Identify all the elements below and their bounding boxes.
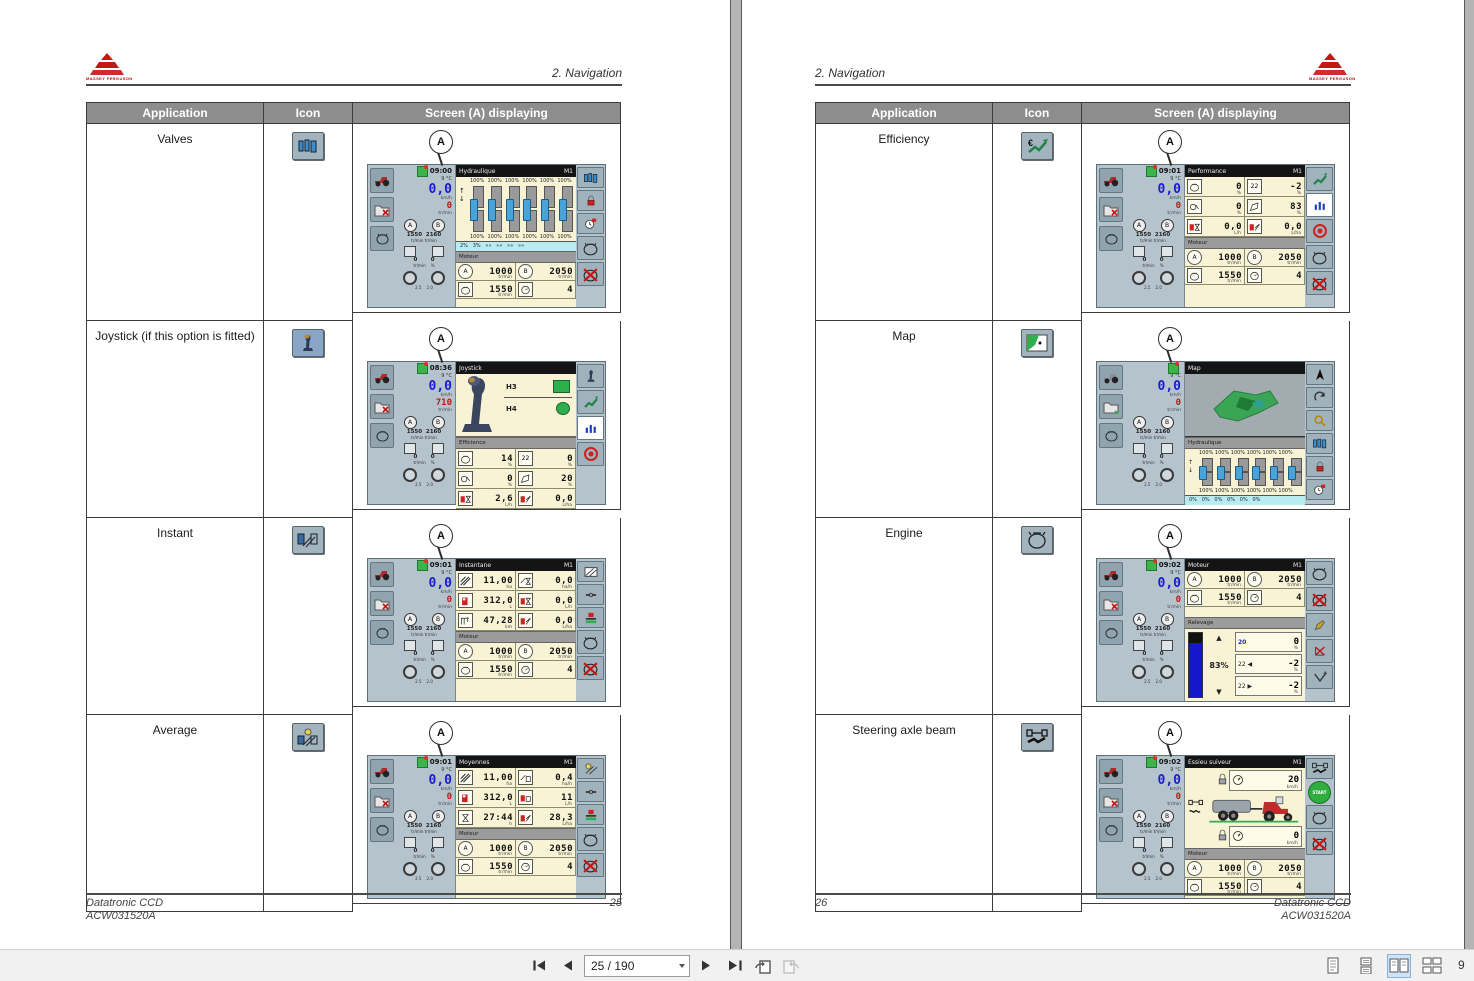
arrow-up-icon: ▲ — [1216, 634, 1221, 642]
memo-badge: M1 — [564, 759, 573, 766]
two-page-scroll-button[interactable] — [1420, 954, 1444, 978]
document-canvas: MASSEY FERGUSON 2. Navigation Applicatio… — [0, 0, 1474, 950]
footer-doc-ref: ACW031520A — [1151, 910, 1351, 923]
fuel-per-area-icon — [518, 613, 533, 628]
engine-off-icon — [1306, 831, 1333, 855]
wheel-icon — [403, 665, 417, 679]
page-gap — [730, 0, 742, 950]
engine-load-icon — [1187, 179, 1202, 194]
h3-label: H3 — [506, 383, 517, 391]
steering-axle-icon — [1306, 758, 1333, 779]
implement-mini-icon — [432, 640, 444, 651]
gear-mini-icon — [1133, 640, 1145, 651]
pto-b-icon: B — [1161, 613, 1174, 626]
motor-panel: A1000tr/min B2050tr/min 1550tr/min 4 — [456, 263, 576, 299]
pto-b-icon: B — [1247, 861, 1262, 876]
section-title: 2. Navigation — [552, 66, 622, 82]
page-dropdown-caret-icon[interactable] — [679, 964, 685, 968]
status-badge — [417, 560, 428, 571]
fuel-per-hour-icon — [518, 593, 533, 608]
panel-title: Map — [1188, 365, 1201, 372]
massey-ferguson-logo: MASSEY FERGUSON — [86, 52, 128, 82]
fuel-area-icon — [518, 491, 533, 506]
engine-small-icon — [1099, 423, 1123, 448]
efficiency-app-icon: € — [1021, 132, 1053, 160]
previous-view-button[interactable] — [752, 955, 774, 977]
h3-indicator-icon — [553, 380, 570, 393]
last-page-button[interactable] — [724, 955, 746, 977]
axle-icon — [1188, 797, 1203, 819]
pto-b-icon: B — [432, 810, 445, 823]
area-hatch-icon — [458, 770, 473, 785]
fuel-icon — [458, 790, 473, 805]
panel-title: Moteur — [1188, 562, 1209, 569]
footer-rule — [86, 893, 622, 895]
wheel-icon — [1132, 665, 1146, 679]
gear-mini-icon — [1133, 443, 1145, 454]
folder-x-icon — [1099, 788, 1123, 813]
h4-label: H4 — [506, 405, 517, 413]
h4-indicator-icon — [556, 402, 570, 415]
pto-a-icon: A — [1187, 250, 1202, 265]
engine-button-icon — [577, 827, 604, 851]
wheel-icon — [1132, 862, 1146, 876]
hourglass-icon — [458, 810, 473, 825]
field-shape — [1200, 385, 1290, 425]
gear-mini-icon — [1133, 837, 1145, 848]
motor-panel-title: Moteur — [1185, 237, 1305, 249]
bar-chart-icon — [1306, 193, 1333, 217]
engine-button-icon — [577, 630, 604, 654]
footer-doc-title: Datatronic CCD — [86, 897, 163, 910]
motor-panel: A1000tr/min B2050tr/min 1550tr/min 4 — [1185, 249, 1305, 285]
motor-panel: A1000tr/min B2050tr/min 1550tr/min 4 — [1185, 860, 1305, 896]
page-number-input[interactable] — [585, 957, 675, 975]
pto-a-icon: A — [404, 416, 417, 429]
page-left: MASSEY FERGUSON 2. Navigation Applicatio… — [0, 0, 729, 950]
motor-panel: A1000tr/min B2050tr/min 1550tr/min 4 — [456, 840, 576, 876]
implement-mini-icon — [1161, 640, 1173, 651]
fuel-average-icon — [518, 790, 533, 805]
page-number-right: 26 — [815, 897, 827, 909]
pto-a-icon: A — [1133, 810, 1146, 823]
memo-badge: M1 — [564, 562, 573, 569]
folder-x-icon — [370, 591, 394, 616]
app-label-map: Map — [816, 321, 993, 518]
wheel-icon — [1160, 468, 1174, 482]
page-gap — [1464, 0, 1474, 950]
callout-a: A — [429, 721, 453, 745]
app-label-steering: Steering axle beam — [816, 715, 993, 912]
motor-panel-title: Moteur — [456, 251, 576, 263]
clock-hatch-icon — [577, 758, 604, 779]
pto-a-icon: A — [404, 219, 417, 232]
folder-x-icon — [370, 197, 394, 222]
lock-icon — [1216, 827, 1229, 846]
clock-lock-icon — [1306, 479, 1333, 500]
engine-icon — [1187, 268, 1202, 283]
valve-column — [488, 185, 501, 233]
terminal-screen-engine: 09:02 9 °C 0,0 km/h 0 tr/min AB 1550 216… — [1096, 558, 1335, 702]
col-header-icon: Icon — [993, 103, 1082, 124]
folder-x-icon — [370, 394, 394, 419]
efficiency-grid: 14% 220% 0% 20% 2,6L/h 0,0L/ha — [456, 449, 576, 509]
folder-x-icon — [370, 788, 394, 813]
field-map-view — [1185, 374, 1305, 437]
gear22-icon: 22 — [1247, 179, 1262, 194]
wheel-icon — [431, 468, 445, 482]
tractor-icon — [370, 365, 394, 390]
slip-pencil-icon — [518, 471, 533, 486]
wheel-slip-icon — [1187, 199, 1202, 214]
pdf-viewer: MASSEY FERGUSON 2. Navigation Applicatio… — [0, 0, 1474, 981]
motor-panel-title: Moteur — [456, 631, 576, 643]
gear22-icon: 22 — [518, 451, 533, 466]
gauge-icon — [1247, 268, 1262, 283]
valve-column — [506, 185, 519, 233]
fuel-icon — [458, 593, 473, 608]
lift-plus-icon — [1306, 665, 1333, 689]
pto-a-icon: A — [1187, 861, 1202, 876]
pto-b-icon: B — [518, 644, 533, 659]
engine-button-icon — [577, 236, 604, 260]
footer-doc-title: Datatronic CCD — [1151, 897, 1351, 910]
terminal-screen-efficiency: 09:01 9 °C 0,0 km/h 0 tr/min AB 1550 216… — [1096, 164, 1335, 308]
sprayer-icon — [577, 804, 604, 825]
engine-app-icon — [1021, 526, 1053, 554]
instant-app-icon — [292, 526, 324, 554]
wheel-icon — [431, 665, 445, 679]
valves-icon — [577, 167, 604, 188]
valve-column — [470, 185, 483, 233]
pto-b-icon: B — [1161, 810, 1174, 823]
header-rule — [815, 84, 1351, 86]
average-app-icon — [292, 723, 324, 751]
hydraulics-panel-title: Hydraulique — [1185, 437, 1305, 449]
clock: 09:00 — [430, 167, 452, 175]
implement-mini-icon — [1161, 246, 1173, 257]
valve-column — [1252, 457, 1265, 487]
rpm-value: 0 — [396, 202, 452, 211]
wheel-icon — [431, 271, 445, 285]
app-label-valves: Valves — [87, 124, 264, 321]
status-badge — [1146, 757, 1157, 768]
panel-title: Moyennes — [459, 759, 490, 766]
gear-mini-icon — [404, 443, 416, 454]
pto-b-icon: B — [432, 613, 445, 626]
speedometer-icon — [1232, 827, 1244, 846]
massey-ferguson-logo: MASSEY FERGUSON — [1309, 52, 1351, 82]
valve-column — [541, 185, 554, 233]
slip-pencil-icon — [1247, 199, 1262, 214]
next-page-button[interactable] — [696, 955, 718, 977]
continuous-scroll-button[interactable] — [1354, 954, 1378, 978]
average-grid: 11,00ha 0,4ha/h 312,0L 11L/h 27:44h 28,3… — [456, 768, 576, 828]
valve-column — [1288, 457, 1301, 487]
engine-small-icon — [370, 423, 394, 448]
wheel-icon — [403, 862, 417, 876]
area-hatch-icon — [458, 573, 473, 588]
wheel-icon — [1160, 862, 1174, 876]
page-right-header: 2. Navigation MASSEY FERGUSON — [815, 52, 1351, 82]
app-label-joystick: Joystick (if this option is fitted) — [87, 321, 264, 518]
gear-mini-icon — [404, 837, 416, 848]
wheel-icon — [1160, 665, 1174, 679]
terminal-screen-map: 9 °C 0,0 km/h 0 tr/min AB 1550 2160 tr/m… — [1096, 361, 1335, 505]
gear-mini-icon — [404, 640, 416, 651]
terminal-screen-average: 09:01 9 °C 0,0 km/h 0 tr/min AB 1550 216… — [367, 755, 606, 899]
tractor-icon — [370, 168, 394, 193]
lock-red-icon — [577, 190, 604, 211]
valve-bars: ↑↓ — [456, 185, 576, 233]
pto-a-icon: A — [1133, 416, 1146, 429]
pto-b-icon: B — [432, 219, 445, 232]
memo-badge: M1 — [1293, 562, 1302, 569]
page-number-left: 25 — [600, 897, 622, 909]
terminal-screen-valves: 09:00 9 °C 0,0 km/h 0 tr/min AB 1550 216… — [367, 164, 606, 308]
lock-red-icon — [1306, 456, 1333, 477]
status-badge — [1146, 560, 1157, 571]
efficiency-panel-title: Efficience — [456, 437, 576, 449]
wheel-icon — [403, 271, 417, 285]
massey-ferguson-wordmark: MASSEY FERGUSON — [1309, 76, 1351, 81]
valve-timer-strip: 2% 3% »» »» »» »» — [456, 241, 576, 251]
gauge-icon — [518, 662, 533, 677]
engine-off-icon — [577, 853, 604, 877]
tractor-icon — [1099, 168, 1123, 193]
joystick-icon — [577, 364, 604, 388]
fuel-area-icon — [1247, 219, 1262, 234]
instant-grid: 11,00ha 0,0ha/h 312,0L 0,0L/h 47,28km 0,… — [456, 571, 576, 631]
next-view-button[interactable] — [780, 955, 802, 977]
engine-icon — [1187, 879, 1202, 894]
callout-a: A — [429, 524, 453, 548]
area-per-hour-icon — [518, 573, 533, 588]
linkage-panel-title: Relevage — [1185, 617, 1305, 629]
tractor-icon — [370, 562, 394, 587]
col-header-application: Application — [87, 103, 264, 124]
tractor-icon — [1099, 365, 1123, 390]
engine-icon — [1187, 590, 1202, 605]
tractor-icon — [1099, 759, 1123, 784]
callout-a: A — [1158, 721, 1182, 745]
magnifier-icon — [1306, 410, 1333, 431]
chart-up-icon — [1306, 167, 1333, 191]
motor-panel: A1000tr/min B2050tr/min 1550tr/min 4 — [456, 643, 576, 679]
pto-a-icon: A — [404, 810, 417, 823]
arrow-down-icon: ▼ — [1216, 688, 1221, 696]
engine-small-icon — [370, 226, 394, 251]
valve-bars: ↑↓ — [1185, 457, 1305, 487]
wheel-icon — [1160, 271, 1174, 285]
engine-small-icon — [1099, 817, 1123, 842]
pto-b-icon: B — [518, 264, 533, 279]
performance-grid: 0% 22-2% 0% 83% 0,0L/h 0,0L/ha — [1185, 177, 1305, 237]
status-badge — [1168, 363, 1179, 374]
pto-a-icon: A — [1187, 572, 1202, 587]
lift-off-icon — [1306, 639, 1333, 663]
folder-x-icon — [1099, 591, 1123, 616]
panel-title: Essieu suiveur — [1188, 759, 1231, 766]
wheel-icon — [431, 862, 445, 876]
first-page-button[interactable] — [528, 955, 550, 977]
pto-b-icon: B — [1247, 250, 1262, 265]
app-label-average: Average — [87, 715, 264, 912]
panel-title: Performance — [1188, 168, 1226, 175]
pto-a-icon: A — [1133, 613, 1146, 626]
tractor-icon — [1099, 562, 1123, 587]
engine-off-icon — [577, 656, 604, 680]
col-header-screen: Screen (A) displaying — [1082, 103, 1350, 124]
engine-button-icon — [1306, 245, 1333, 269]
gear-mini-icon — [404, 246, 416, 257]
fuel-hourglass-icon — [458, 491, 473, 506]
implement-link-icon — [577, 781, 604, 802]
implement-mini-icon — [432, 443, 444, 454]
status-badge — [417, 757, 428, 768]
distance-icon — [458, 613, 473, 628]
tractor-icon — [370, 759, 394, 784]
motor-panel-title: Moteur — [1185, 848, 1305, 860]
steering-axle-app-icon — [1021, 723, 1053, 751]
engine-off-icon — [1306, 587, 1333, 611]
pencil-icon — [1306, 613, 1333, 637]
table-left: Application Icon Screen (A) displaying V… — [86, 102, 621, 912]
panel-title: Joystick — [459, 365, 482, 372]
implement-mini-icon — [1161, 837, 1173, 848]
pto-a-icon: A — [458, 644, 473, 659]
start-button-icon: START — [1308, 781, 1331, 804]
speed-value: 0,0 — [396, 183, 452, 196]
gear-mini-icon — [1133, 246, 1145, 257]
steering-panel: 20km/h — [1185, 768, 1305, 848]
pto-b-icon: B — [518, 841, 533, 856]
folder-x-icon — [1099, 197, 1123, 222]
valve-column — [1235, 457, 1248, 487]
engine-button-icon — [1306, 561, 1333, 585]
implement-mini-icon — [432, 246, 444, 257]
col-header-application: Application — [816, 103, 993, 124]
gauge-icon — [1247, 590, 1262, 605]
callout-a: A — [1158, 524, 1182, 548]
motor-panel: A1000tr/min B2050tr/min 1550tr/min 4 — [1185, 571, 1305, 607]
implement-link-icon — [577, 584, 604, 605]
gauge-icon — [518, 859, 533, 874]
section-title: 2. Navigation — [815, 66, 885, 82]
engine-small-icon — [370, 620, 394, 645]
wheel-icon — [403, 468, 417, 482]
valve-column — [559, 185, 572, 233]
table-right: Application Icon Screen (A) displaying E… — [815, 102, 1350, 912]
engine-small-icon — [1099, 226, 1123, 251]
lock-icon — [1216, 771, 1229, 790]
terminal-screen-joystick: 08:36 9 °C 0,0 km/h 710 tr/min AB 1550 2… — [367, 361, 606, 505]
engine-icon — [458, 662, 473, 677]
wheel-icon — [1132, 271, 1146, 285]
massey-ferguson-wordmark: MASSEY FERGUSON — [86, 76, 128, 81]
chart-up-icon — [577, 390, 604, 414]
area-average-icon — [518, 770, 533, 785]
target-icon — [577, 442, 604, 466]
fuel-per-area-icon — [518, 810, 533, 825]
linkage-panel: ▲ 83% ▼ 200% 22 ◀-2% 22 ▶-2% — [1185, 629, 1305, 701]
implement-mini-icon — [1161, 443, 1173, 454]
panel-title: Hydraulique — [459, 168, 495, 175]
col-header-icon: Icon — [264, 103, 353, 124]
valve-column — [1270, 457, 1283, 487]
two-page-view-button[interactable] — [1387, 954, 1411, 978]
valves-icon — [1306, 433, 1333, 454]
pto-a-icon: A — [458, 264, 473, 279]
pto-a-icon: A — [458, 841, 473, 856]
terminal-screen-steering: 09:02 9 °C 0,0 km/h 0 tr/min AB 1550 216… — [1096, 755, 1335, 899]
app-label-engine: Engine — [816, 518, 993, 715]
memo-badge: M1 — [564, 168, 573, 175]
drop-rate-label: 20 — [1238, 639, 1258, 646]
engine-icon — [458, 859, 473, 874]
callout-a: A — [1158, 327, 1182, 351]
motor-panel-title: Moteur — [456, 828, 576, 840]
callout-a: A — [1158, 130, 1182, 154]
pto-a-icon: A — [1133, 219, 1146, 232]
memo-badge: M1 — [1293, 759, 1302, 766]
valve-column — [1199, 457, 1212, 487]
valves-app-icon — [292, 132, 324, 160]
gear22-right-label: 22 ▶ — [1238, 683, 1258, 690]
pto-b-icon: B — [1247, 572, 1262, 587]
engine-small-icon — [1099, 620, 1123, 645]
engine-off-icon — [577, 262, 604, 286]
folder-x-icon — [1099, 394, 1123, 419]
implement-mini-icon — [432, 837, 444, 848]
gear22-left-label: 22 ◀ — [1238, 661, 1258, 668]
nav-arrow-icon — [1306, 364, 1333, 385]
panel-title: Instantane — [459, 562, 491, 569]
previous-page-button[interactable] — [556, 955, 578, 977]
gauge-icon — [1247, 879, 1262, 894]
speedometer-icon — [1232, 771, 1244, 790]
pdf-toolbar: 9 — [0, 949, 1474, 981]
sprayer-icon — [577, 607, 604, 628]
gauge-icon — [518, 282, 533, 297]
pto-b-icon: B — [432, 416, 445, 429]
header-rule — [86, 84, 622, 86]
app-label-efficiency: Efficiency — [816, 124, 993, 321]
footer-doc-ref: ACW031520A — [86, 910, 163, 923]
engine-small-icon — [370, 817, 394, 842]
fuel-hourglass-icon — [1187, 219, 1202, 234]
hatch-button-icon — [577, 561, 604, 582]
pto-b-icon: B — [1161, 416, 1174, 429]
wheel-slip-icon — [458, 471, 473, 486]
footer-rule — [815, 893, 1351, 895]
callout-a: A — [429, 327, 453, 351]
status-badge — [417, 363, 428, 374]
joystick-app-icon — [292, 329, 324, 357]
refresh-icon — [1306, 387, 1333, 408]
engine-icon — [458, 282, 473, 297]
engine-off-icon — [1306, 271, 1333, 295]
zoom-level-text: 9 — [1458, 958, 1472, 972]
wheel-icon — [1132, 468, 1146, 482]
target-icon — [1306, 219, 1333, 243]
memo-badge: M1 — [1293, 168, 1302, 175]
page-right: 2. Navigation MASSEY FERGUSON Applicatio… — [742, 0, 1464, 950]
tractor-trailer-image — [1206, 791, 1302, 825]
terminal-screen-instant: 09:01 9 °C 0,0 km/h 0 tr/min AB 1550 216… — [367, 558, 606, 702]
single-page-view-button[interactable] — [1321, 954, 1345, 978]
clock-lock-icon — [577, 213, 604, 234]
